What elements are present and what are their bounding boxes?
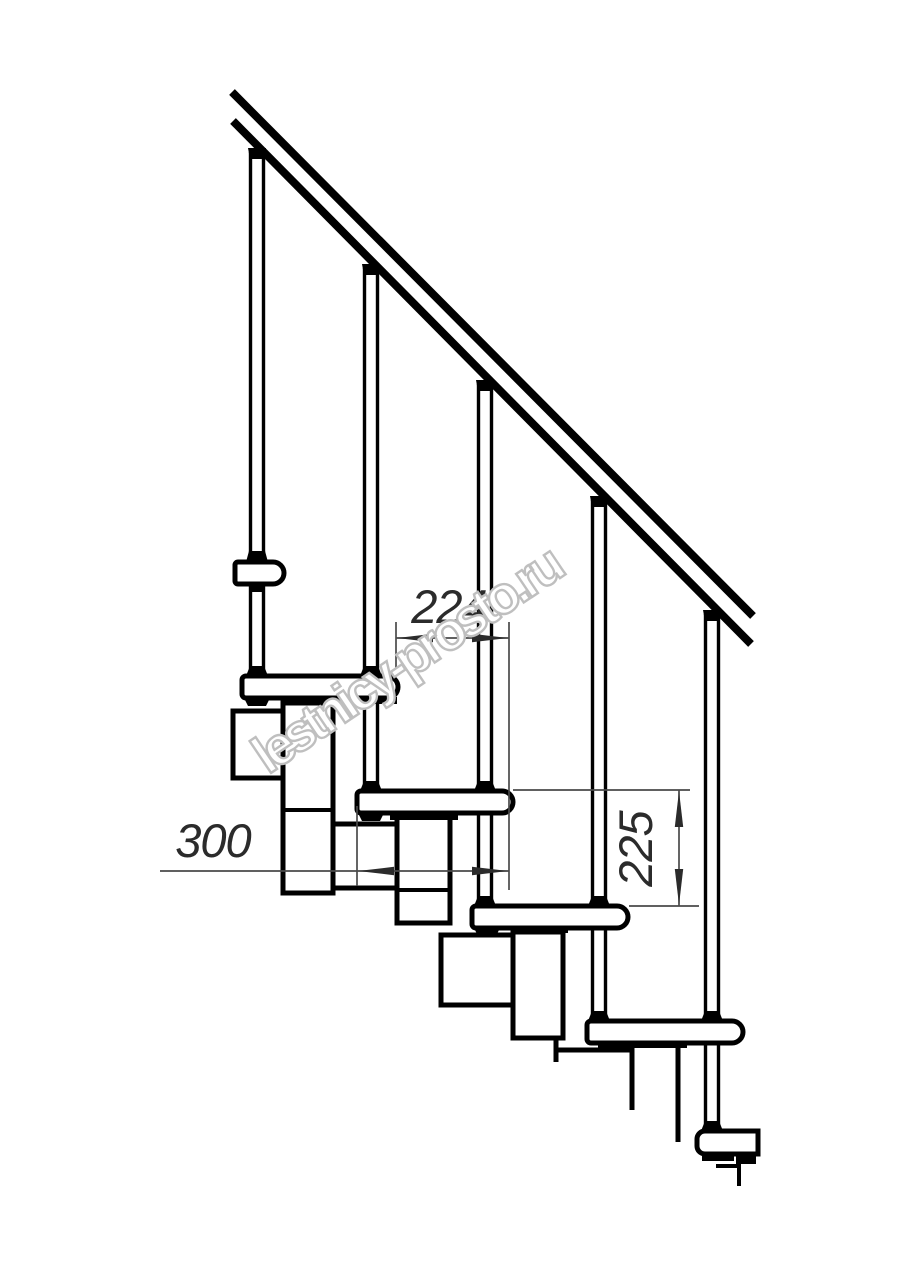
fittings	[244, 148, 756, 1164]
tread-2	[357, 791, 513, 813]
staircase-drawing-svg: 224 300 225 lestnicy-prosto.ru	[0, 0, 914, 1280]
bracket-collar-top	[246, 551, 268, 562]
module-column-3	[513, 932, 563, 1038]
module-column-2	[397, 817, 450, 923]
tread-5-plate-2	[736, 1155, 756, 1164]
dim-label-tread-depth: 300	[175, 814, 251, 867]
baluster-1	[251, 152, 264, 672]
floor-break-line	[716, 1166, 739, 1186]
tread-3	[472, 906, 628, 928]
staircase-technical-drawing: 224 300 225 lestnicy-prosto.ru	[0, 0, 914, 1280]
arrow-down-225	[675, 869, 683, 905]
upper-landing-bracket	[235, 551, 284, 592]
tread-5-plate	[702, 1152, 734, 1161]
module-column-4-cut	[632, 1047, 678, 1142]
rail-collar-1	[248, 148, 266, 159]
baluster-5	[706, 614, 719, 1150]
arrow-up-225	[675, 791, 683, 827]
rail-collar-3	[476, 380, 494, 391]
baluster-3	[479, 384, 492, 928]
watermark-text: lestnicy-prosto.ru	[242, 535, 573, 785]
tread-3-plate	[516, 926, 568, 933]
baluster-2-nut	[358, 813, 384, 821]
tread-4-plate	[598, 1042, 687, 1048]
tread-2-plate	[390, 814, 458, 820]
baluster-1-nut	[244, 698, 270, 706]
bracket-collar-bottom	[250, 584, 264, 592]
baluster-2	[365, 268, 378, 813]
bracket-body	[235, 562, 284, 584]
tread-4	[587, 1021, 743, 1043]
module-connector-2	[441, 935, 518, 1005]
module-connector-1	[333, 824, 404, 888]
support-modules	[233, 703, 739, 1186]
baluster-3-nut	[474, 928, 500, 936]
rail-collar-5	[703, 610, 721, 621]
dim-label-step-rise: 225	[609, 809, 662, 887]
rail-collar-2	[362, 264, 380, 275]
baluster-4	[593, 500, 606, 1043]
tread-5-cut	[697, 1131, 758, 1154]
rail-collar-4	[590, 496, 608, 507]
